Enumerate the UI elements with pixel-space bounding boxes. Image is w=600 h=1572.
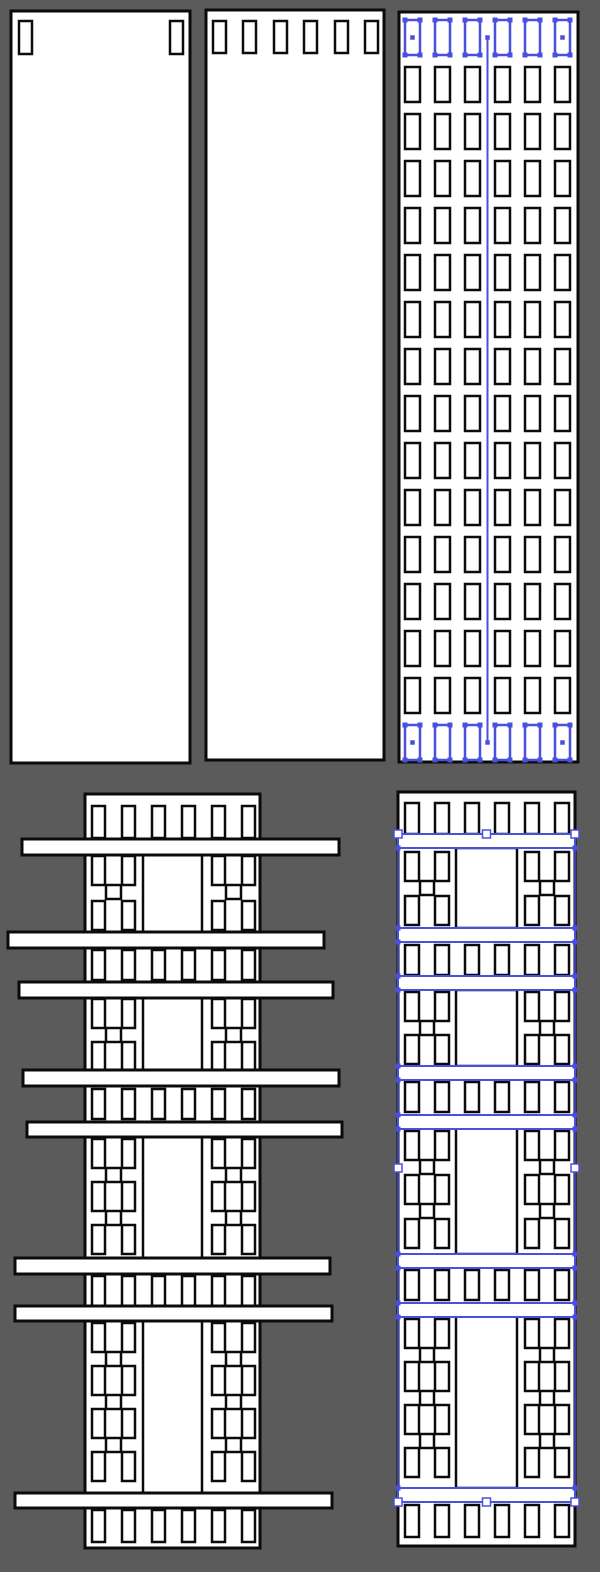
part-top-slotted-panel[interactable] — [206, 10, 384, 760]
part-blank-panel[interactable] — [11, 11, 190, 763]
part-assembly-right[interactable] — [398, 792, 575, 1546]
artboard-svg — [0, 0, 600, 1572]
editor-canvas[interactable] — [0, 0, 600, 1572]
